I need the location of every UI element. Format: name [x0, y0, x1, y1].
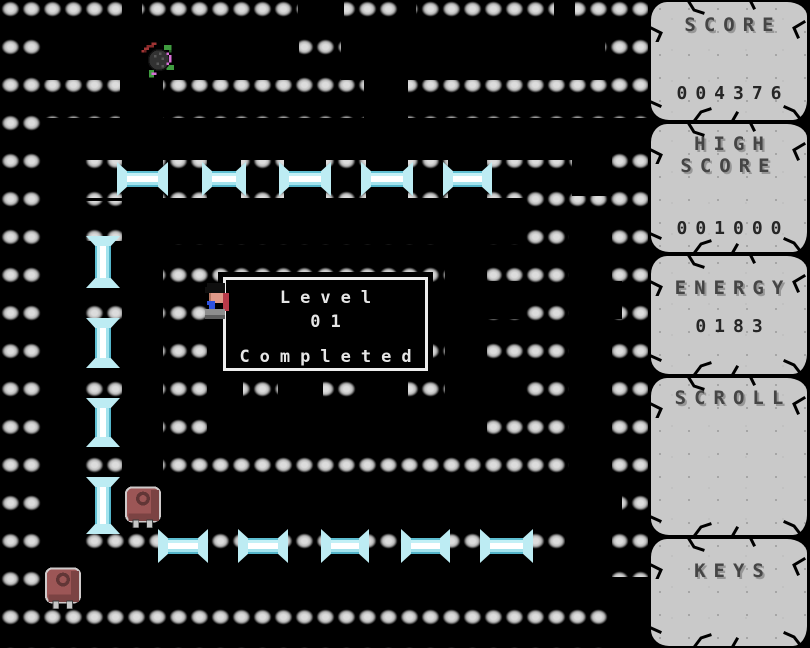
wall-block [243, 376, 278, 413]
wall-block [83, 160, 122, 198]
energy-label: ENERGY [667, 277, 792, 299]
game-screen: Level 01 Completed SCORE 004376 HIGH SCO… [0, 0, 810, 648]
wall-block [487, 319, 525, 359]
ice-beam-vertical [95, 239, 111, 285]
scroll-label: SCROLL [667, 387, 792, 409]
wall-block [323, 376, 358, 413]
energy-value: 0183 [687, 316, 770, 337]
dialog-line-3: Completed [226, 345, 425, 369]
wall-block [163, 80, 364, 118]
player-sprite [203, 283, 229, 323]
high-score-value: 001000 [668, 218, 789, 239]
game-viewport[interactable]: Level 01 Completed [0, 0, 648, 648]
wall-notch [298, 0, 344, 18]
panel-scroll: SCROLL [651, 378, 807, 535]
enemy-creature-sprite [139, 40, 179, 80]
wall-block [408, 80, 648, 118]
wall-notch [612, 488, 622, 525]
ice-beam-horizontal [120, 171, 165, 187]
wall-block [83, 283, 122, 323]
wall-block [203, 527, 243, 565]
wall-block [83, 442, 122, 482]
wall-block [163, 160, 207, 198]
wall-block [364, 527, 406, 565]
wall-block [408, 376, 445, 413]
wall-block [487, 401, 525, 445]
wall-block [525, 196, 569, 483]
wall-block [299, 38, 341, 80]
panel-energy: ENERGY 0183 [651, 256, 807, 373]
ice-beam-vertical [95, 321, 111, 365]
wall-notch [399, 0, 416, 18]
wall-notch [554, 0, 575, 18]
wall-block [408, 160, 448, 198]
wall-block [445, 527, 485, 565]
panel-score: SCORE 004376 [651, 2, 807, 120]
ice-beam-horizontal [364, 171, 410, 187]
wall-notch [122, 0, 142, 18]
ice-beam-horizontal [205, 171, 243, 187]
red-tower-sprite [122, 486, 164, 528]
ice-beam-horizontal [404, 538, 447, 554]
wall-block [163, 445, 565, 483]
wall-block [83, 363, 122, 403]
wall-block [0, 0, 42, 648]
wall-block [326, 160, 366, 198]
ice-beam-horizontal [446, 171, 489, 187]
dialog-border: Level 01 Completed [223, 277, 428, 371]
wall-block [283, 527, 326, 565]
wall-block [83, 201, 122, 241]
wall-block [42, 80, 120, 118]
wall-notch [612, 281, 622, 319]
keys-label: KEYS [686, 560, 772, 582]
ice-beam-vertical [95, 480, 111, 531]
ice-beam-horizontal [282, 171, 328, 187]
panel-keys: KEYS [651, 539, 807, 646]
hud-sidebar: SCORE 004376 HIGH SCORE 001000 ENERGY 01… [648, 0, 810, 648]
wall-block [487, 244, 525, 281]
score-label: SCORE [676, 14, 781, 36]
wall-block [241, 160, 284, 198]
stone-crack-icon [651, 334, 807, 374]
dialog-line-1: Level [226, 286, 425, 310]
ice-beam-horizontal [483, 538, 530, 554]
wall-block [487, 160, 572, 198]
ice-beam-horizontal [324, 538, 366, 554]
red-tower-sprite [42, 567, 84, 609]
stone-crack-icon [651, 606, 807, 646]
wall-block [0, 606, 608, 648]
high-score-label: HIGH SCORE [680, 133, 777, 177]
score-value: 004376 [668, 83, 789, 104]
stone-crack-icon [651, 495, 807, 535]
ice-beam-vertical [95, 401, 111, 444]
ice-beam-horizontal [161, 538, 205, 554]
panel-high-score: HIGH SCORE 001000 [651, 124, 807, 252]
wall-block [528, 527, 565, 565]
dialog-line-2: 01 [226, 310, 425, 334]
ice-beam-horizontal [241, 538, 285, 554]
wall-block [83, 529, 163, 565]
level-complete-dialog: Level 01 Completed [218, 272, 433, 376]
